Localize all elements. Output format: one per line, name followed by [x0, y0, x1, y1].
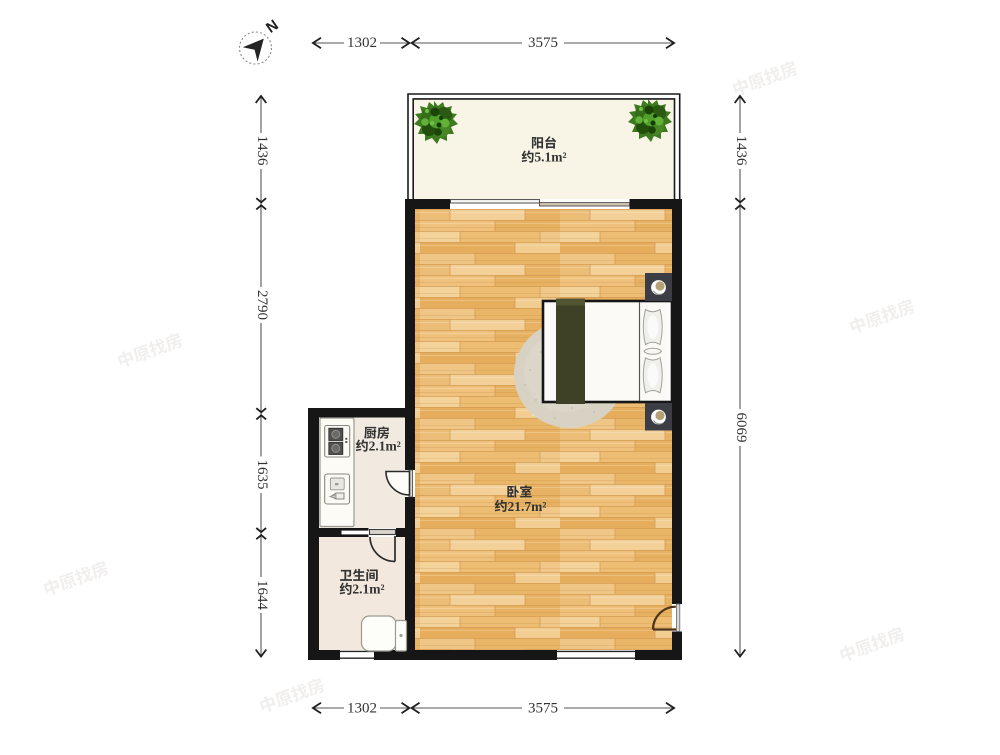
svg-text:1302: 1302	[347, 701, 377, 717]
svg-text:1302: 1302	[347, 35, 377, 51]
svg-text:5.1m²: 5.1m²	[534, 150, 566, 165]
svg-text:2.1m²: 2.1m²	[352, 582, 384, 597]
svg-text:2790: 2790	[254, 290, 270, 320]
svg-text:6069: 6069	[733, 413, 749, 443]
svg-text:3575: 3575	[528, 701, 558, 717]
svg-text:21.7m²: 21.7m²	[508, 499, 547, 514]
svg-text:2.1m²: 2.1m²	[369, 439, 401, 454]
svg-text:3575: 3575	[528, 35, 558, 51]
svg-text:1436: 1436	[254, 136, 270, 167]
svg-text:1436: 1436	[733, 136, 749, 167]
svg-text:1635: 1635	[254, 460, 270, 490]
svg-text:1644: 1644	[254, 580, 270, 611]
